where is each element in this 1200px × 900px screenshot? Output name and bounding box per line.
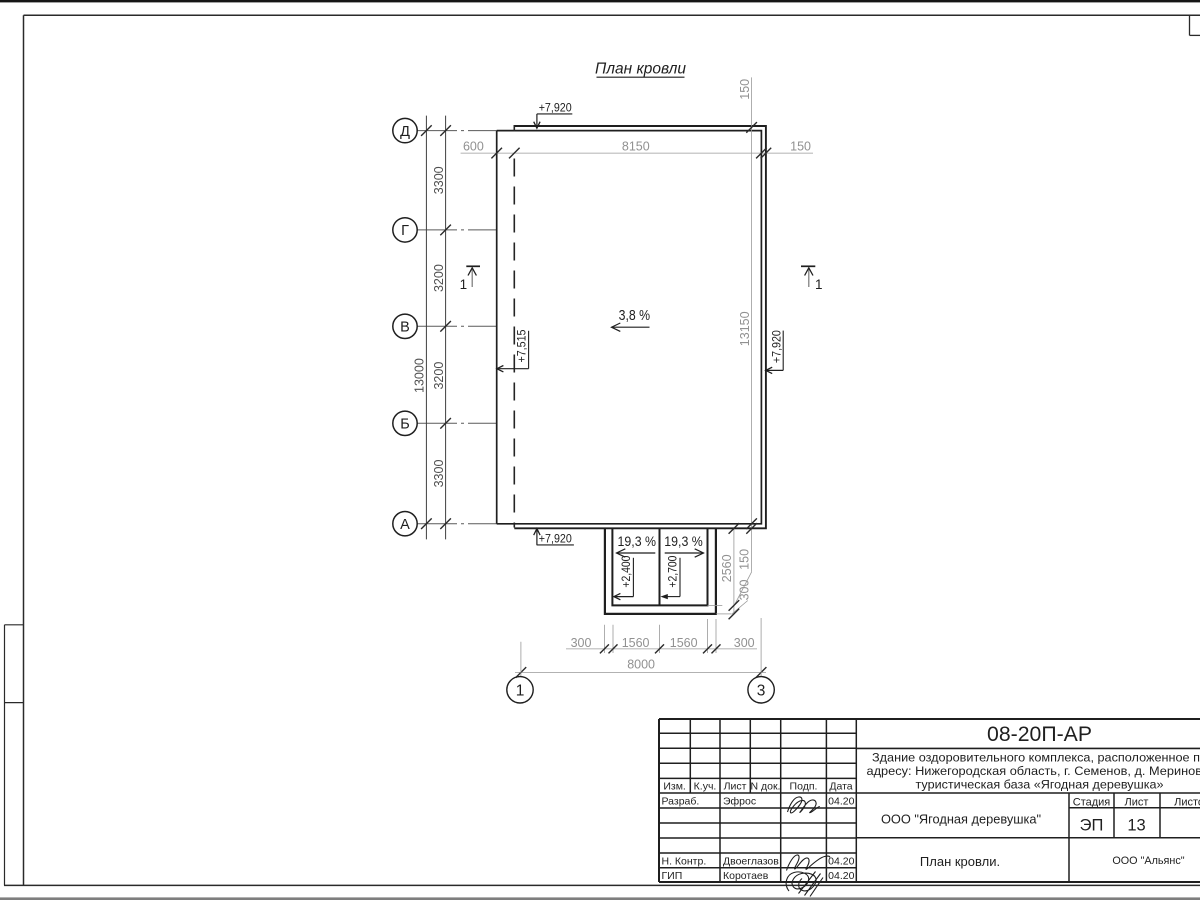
svg-text:Лист: Лист bbox=[1125, 796, 1149, 808]
svg-text:19,3 %: 19,3 % bbox=[618, 534, 657, 549]
svg-text:Г: Г bbox=[401, 223, 409, 239]
svg-text:Н. Контр.: Н. Контр. bbox=[662, 855, 707, 867]
svg-text:Д: Д bbox=[400, 124, 410, 140]
svg-text:150: 150 bbox=[738, 549, 752, 570]
svg-text:04.20: 04.20 bbox=[828, 870, 854, 882]
svg-text:туристическая база «Ягодная де: туристическая база «Ягодная деревушка» bbox=[916, 778, 1164, 792]
svg-text:300: 300 bbox=[738, 580, 752, 601]
svg-text:1: 1 bbox=[815, 277, 823, 292]
svg-text:ООО "Альянс": ООО "Альянс" bbox=[1112, 855, 1184, 867]
svg-text:План кровли.: План кровли. bbox=[920, 854, 1000, 869]
svg-text:08-20П-АР: 08-20П-АР bbox=[987, 723, 1092, 746]
svg-text:13150: 13150 bbox=[738, 311, 752, 346]
svg-text:8000: 8000 bbox=[627, 658, 655, 672]
svg-text:адресу: Нижегородская область,: адресу: Нижегородская область, г. Семено… bbox=[867, 764, 1200, 778]
svg-text:Стадия: Стадия bbox=[1073, 796, 1111, 808]
svg-text:150: 150 bbox=[790, 139, 811, 153]
svg-text:План кровли: План кровли bbox=[595, 61, 686, 78]
svg-text:Разраб.: Разраб. bbox=[662, 796, 700, 808]
svg-text:Подп.: Подп. bbox=[790, 780, 818, 792]
svg-text:Эфрос: Эфрос bbox=[723, 796, 756, 808]
svg-text:13000: 13000 bbox=[412, 358, 426, 393]
svg-text:300: 300 bbox=[734, 636, 755, 650]
svg-text:+7,920: +7,920 bbox=[769, 330, 783, 363]
svg-text:19,3 %: 19,3 % bbox=[664, 534, 703, 549]
svg-text:2560: 2560 bbox=[720, 554, 734, 582]
svg-text:ООО "Ягодная деревушка": ООО "Ягодная деревушка" bbox=[881, 811, 1041, 826]
svg-text:600: 600 bbox=[463, 139, 484, 153]
svg-text:1: 1 bbox=[460, 277, 468, 292]
svg-text:8150: 8150 bbox=[622, 139, 650, 153]
svg-text:04.20: 04.20 bbox=[828, 796, 854, 808]
svg-text:+7,515: +7,515 bbox=[515, 329, 529, 362]
svg-text:Дата: Дата bbox=[829, 780, 852, 792]
svg-text:+2,700: +2,700 bbox=[666, 555, 680, 587]
svg-text:150: 150 bbox=[738, 79, 752, 100]
svg-text:Двоеглазов: Двоеглазов bbox=[723, 855, 779, 867]
svg-text:3200: 3200 bbox=[432, 362, 446, 390]
svg-text:+7,920: +7,920 bbox=[539, 531, 572, 545]
svg-text:3300: 3300 bbox=[432, 460, 446, 488]
svg-text:+7,920: +7,920 bbox=[539, 100, 572, 114]
svg-text:1560: 1560 bbox=[622, 636, 650, 650]
svg-text:04.20: 04.20 bbox=[828, 855, 854, 867]
svg-text:ЭП: ЭП bbox=[1080, 817, 1104, 835]
svg-text:Лист: Лист bbox=[724, 780, 747, 792]
svg-text:3: 3 bbox=[757, 682, 766, 699]
svg-text:3300: 3300 bbox=[432, 166, 446, 194]
svg-text:В: В bbox=[400, 320, 410, 336]
svg-text:13: 13 bbox=[1127, 817, 1145, 835]
svg-text:А: А bbox=[400, 517, 410, 533]
svg-text:3200: 3200 bbox=[432, 264, 446, 292]
svg-text:1: 1 bbox=[516, 682, 525, 699]
svg-text:300: 300 bbox=[571, 636, 592, 650]
svg-text:ГИП: ГИП bbox=[662, 870, 683, 882]
svg-text:К.уч.: К.уч. bbox=[694, 780, 717, 792]
svg-text:Б: Б bbox=[400, 417, 410, 433]
svg-text:Листов: Листов bbox=[1174, 796, 1200, 808]
svg-text:+2,400: +2,400 bbox=[619, 555, 633, 587]
svg-text:1560: 1560 bbox=[670, 636, 698, 650]
svg-text:Коротаев: Коротаев bbox=[723, 870, 769, 882]
svg-text:3,8 %: 3,8 % bbox=[619, 308, 651, 324]
svg-text:N док.: N док. bbox=[751, 780, 781, 792]
svg-text:Изм.: Изм. bbox=[663, 780, 686, 792]
svg-text:Здание оздоровительного компле: Здание оздоровительного комплекса, распо… bbox=[872, 751, 1200, 765]
